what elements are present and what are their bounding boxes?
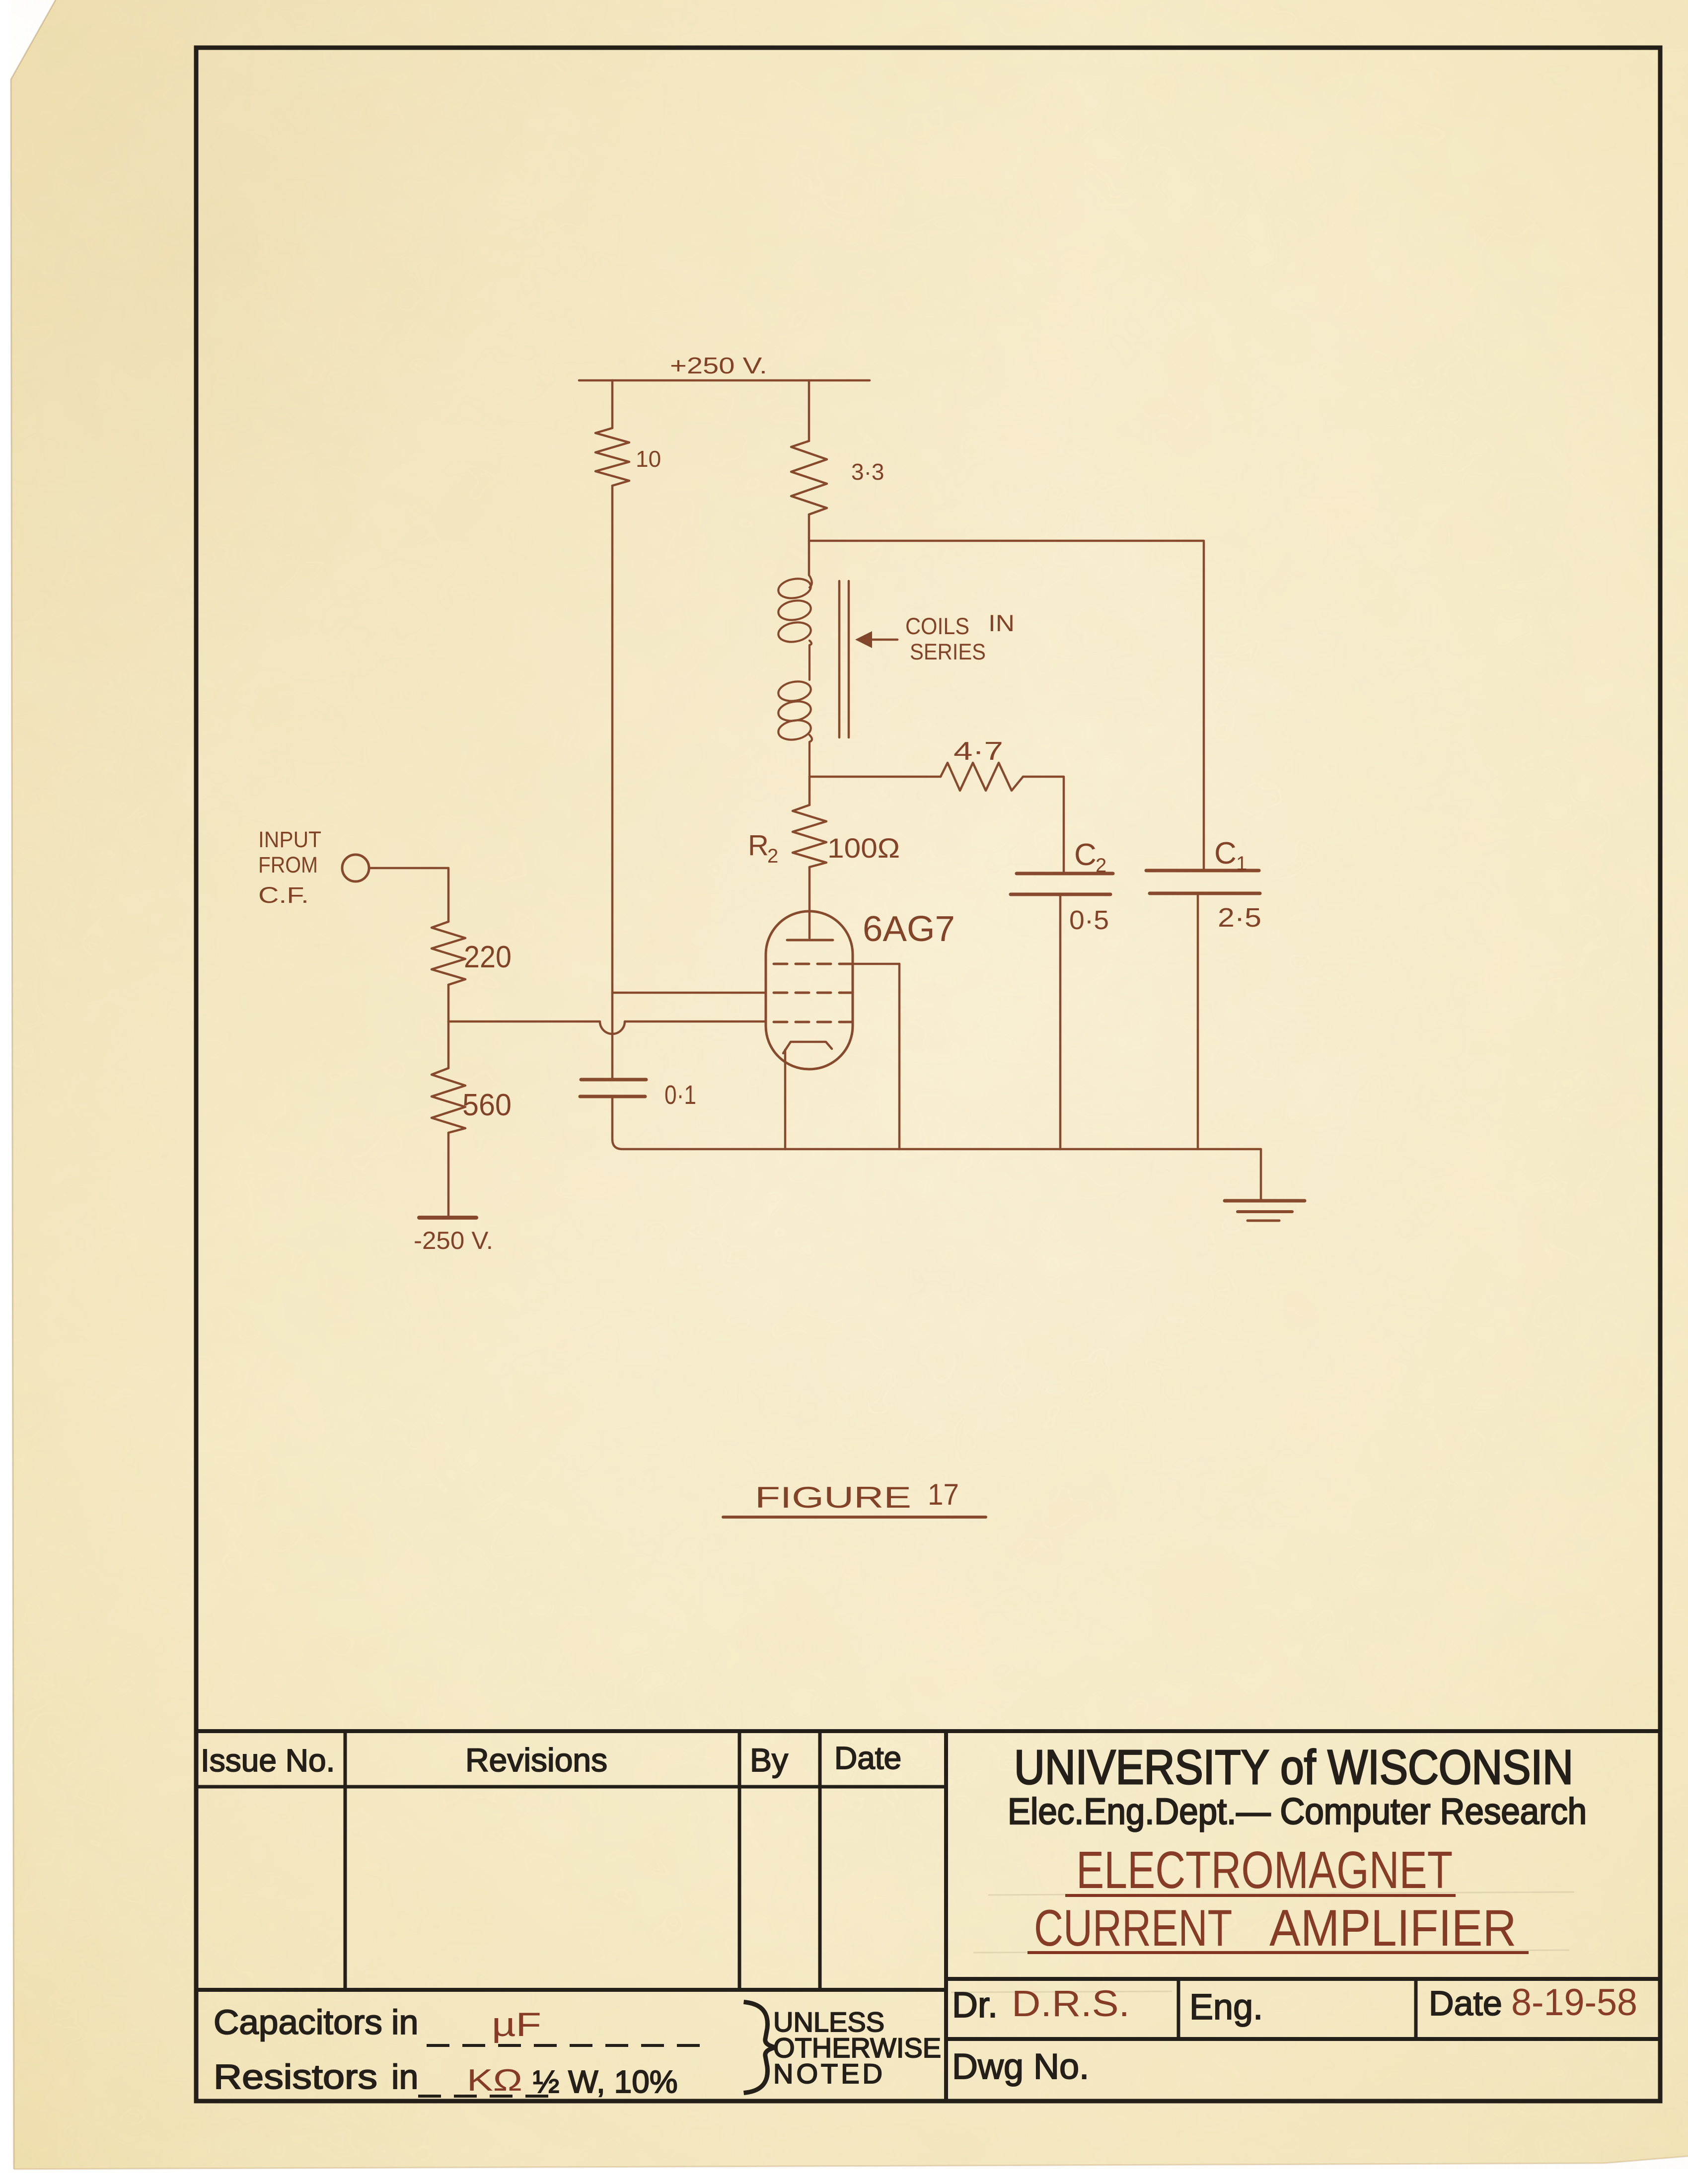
svg-text:Issue No.: Issue No.	[201, 1743, 335, 1778]
svg-text:0·1: 0·1	[664, 1080, 696, 1110]
svg-text:6AG7: 6AG7	[863, 909, 955, 949]
svg-text:NOTED: NOTED	[773, 2058, 885, 2089]
svg-text:KΩ: KΩ	[467, 2063, 522, 2098]
svg-text:µF: µF	[492, 2006, 541, 2043]
svg-text:10: 10	[636, 446, 661, 472]
svg-text:D.R.S.: D.R.S.	[1012, 1983, 1130, 2024]
svg-text:UNIVERSITY of WISCONSIN: UNIVERSITY of WISCONSIN	[1014, 1740, 1573, 1794]
svg-text:in: in	[391, 2057, 418, 2096]
svg-text:Date: Date	[834, 1740, 901, 1776]
svg-text:COILS: COILS	[905, 613, 969, 639]
svg-text:IN: IN	[988, 610, 1015, 636]
svg-text:½ W, 10%: ½ W, 10%	[533, 2064, 678, 2100]
svg-text:100Ω: 100Ω	[827, 832, 900, 864]
svg-text:3·3: 3·3	[851, 459, 884, 485]
svg-text:C: C	[1074, 838, 1097, 872]
svg-text:By: By	[750, 1742, 788, 1778]
svg-text:C: C	[1214, 836, 1237, 871]
svg-text:Date: Date	[1429, 1984, 1502, 2023]
svg-text:ELECTROMAGNET: ELECTROMAGNET	[1076, 1841, 1453, 1899]
svg-text:Elec.Eng.Dept.— Computer Resea: Elec.Eng.Dept.— Computer Research	[1008, 1791, 1587, 1832]
svg-text:0·5: 0·5	[1069, 905, 1109, 935]
svg-text:C.F.: C.F.	[258, 882, 309, 908]
svg-text:2: 2	[767, 845, 778, 867]
svg-text:Dr.: Dr.	[952, 1985, 998, 2025]
svg-text:+250 V.: +250 V.	[670, 353, 767, 378]
svg-text:Capacitors: Capacitors	[214, 2003, 382, 2041]
svg-text:1: 1	[1236, 853, 1247, 874]
svg-text:SERIES: SERIES	[910, 639, 986, 664]
svg-text:FIGURE: FIGURE	[755, 1481, 911, 1514]
svg-text:4·7: 4·7	[954, 737, 1003, 766]
svg-text:Dwg No.: Dwg No.	[952, 2047, 1089, 2087]
svg-text:in: in	[391, 2003, 418, 2041]
svg-text:220: 220	[464, 940, 512, 974]
svg-text:2·5: 2·5	[1218, 903, 1261, 933]
svg-text:INPUT: INPUT	[258, 827, 321, 852]
svg-text:560: 560	[462, 1088, 512, 1122]
svg-text:8-19-58: 8-19-58	[1511, 1981, 1637, 2024]
svg-text:-250 V.: -250 V.	[414, 1227, 493, 1254]
svg-text:17: 17	[928, 1478, 959, 1511]
svg-text:CURRENT: CURRENT	[1034, 1899, 1232, 1957]
svg-text:R: R	[748, 829, 769, 862]
svg-text:AMPLIFIER: AMPLIFIER	[1269, 1899, 1517, 1957]
svg-text:2: 2	[1096, 855, 1106, 876]
svg-text:Resistors: Resistors	[214, 2057, 377, 2096]
svg-text:Eng.: Eng.	[1189, 1987, 1263, 2027]
svg-text:FROM: FROM	[258, 852, 318, 877]
svg-text:Revisions: Revisions	[465, 1742, 607, 1778]
